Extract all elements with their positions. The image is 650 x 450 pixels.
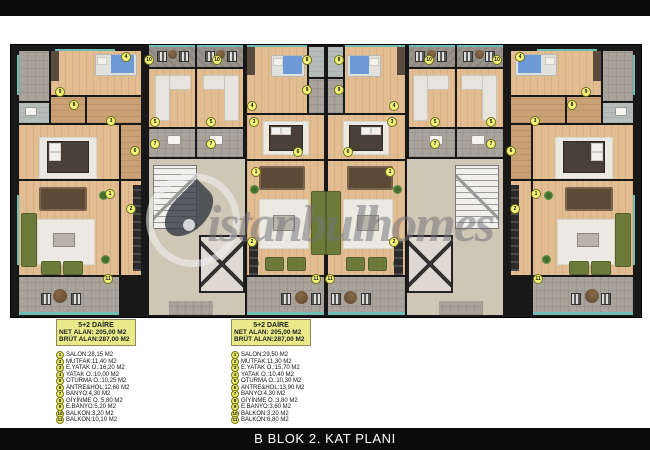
plan-badge-layer: 9836125710114105748936121110574893612119… <box>11 45 641 317</box>
legend-room-row: 11BALKON:6,80 M2 <box>231 417 381 424</box>
plan-room-badge: 6 <box>506 146 516 156</box>
legend-apartment-1: 5+2 DAİRE NET ALAN: 205,00 M2 BRÜT ALAN:… <box>56 319 206 424</box>
room-label: GİYİNME O.:3,80 M2 <box>241 398 298 404</box>
plan-room-badge: 11 <box>533 274 543 284</box>
plan-room-badge: 8 <box>567 100 577 110</box>
info-box: 5+2 DAİRE NET ALAN: 205,00 M2 BRÜT ALAN:… <box>231 319 311 346</box>
floor-plan: istanbulhomes 98361257101141057489361211… <box>10 44 642 318</box>
room-label: E.BANYO:5,20 M2 <box>66 404 116 410</box>
room-label: BALKON:6,80 M2 <box>241 417 289 423</box>
plan-room-badge: 5 <box>486 117 496 127</box>
plan-room-badge: 10 <box>492 55 502 65</box>
gross-area-label: BRÜT ALAN:287,00 M2 <box>59 336 133 343</box>
room-label: MUTFAK:11,30 M2 <box>241 359 292 365</box>
plan-room-badge: 2 <box>389 237 399 247</box>
plan-room-badge: 6 <box>343 147 353 157</box>
gross-area-label: BRÜT ALAN:287,00 M2 <box>234 336 308 343</box>
plan-room-badge: 4 <box>121 52 131 62</box>
plan-room-badge: 5 <box>430 117 440 127</box>
plan-room-badge: 9 <box>302 85 312 95</box>
plan-room-badge: 10 <box>212 55 222 65</box>
plan-room-badge: 11 <box>103 274 113 284</box>
plan-room-badge: 1 <box>385 167 395 177</box>
plan-room-badge: 9 <box>334 85 344 95</box>
plan-room-badge: 5 <box>150 117 160 127</box>
plan-room-badge: 9 <box>581 87 591 97</box>
room-label: ANTRE&HOL:13,90 M2 <box>241 385 304 391</box>
plan-room-badge: 3 <box>106 116 116 126</box>
plan-room-badge: 4 <box>247 101 257 111</box>
plan-room-badge: 8 <box>334 55 344 65</box>
plan-room-badge: 5 <box>206 117 216 127</box>
plan-room-badge: 2 <box>510 204 520 214</box>
plan-room-badge: 10 <box>424 55 434 65</box>
plan-room-badge: 2 <box>126 204 136 214</box>
legend-apartment-2: 5+2 DAİRE NET ALAN: 205,00 M2 BRÜT ALAN:… <box>231 319 381 424</box>
apartment-type-label: 5+2 DAİRE <box>234 322 308 329</box>
plan-room-badge: 3 <box>249 117 259 127</box>
plan-room-badge: 7 <box>206 139 216 149</box>
room-label: BANYO:4,30 M2 <box>66 391 110 397</box>
room-label: E.YATAK O.:16,20 M2 <box>66 365 125 371</box>
plan-room-badge: 6 <box>130 146 140 156</box>
room-label: BALKON:10,10 M2 <box>66 417 117 423</box>
net-area-label: NET ALAN: 205,00 M2 <box>59 329 133 336</box>
room-number-badge: 11 <box>56 416 64 424</box>
page-title: B BLOK 2. KAT PLANI <box>254 431 396 446</box>
plan-room-badge: 7 <box>486 139 496 149</box>
room-label: BALKON:3,20 M2 <box>66 411 114 417</box>
info-box: 5+2 DAİRE NET ALAN: 205,00 M2 BRÜT ALAN:… <box>56 319 136 346</box>
plan-room-badge: 1 <box>251 167 261 177</box>
room-label: GİYİNME O.:5,80 M2 <box>66 398 123 404</box>
room-label: E.BANYO:3,60 M2 <box>241 404 291 410</box>
legend-room-row: 11BALKON:10,10 M2 <box>56 417 206 424</box>
room-label: MUTFAK:11,40 M2 <box>66 359 117 365</box>
room-label: OTURMA O.:10,30 M2 <box>241 378 301 384</box>
floor-plan-page: istanbulhomes 98361257101141057489361211… <box>0 0 650 450</box>
room-label: ANTRE&HOL:12,60 M2 <box>66 385 129 391</box>
plan-room-badge: 11 <box>325 274 335 284</box>
room-label: OTURMA O.:10,25 M2 <box>66 378 126 384</box>
plan-room-badge: 4 <box>515 52 525 62</box>
plan-room-badge: 11 <box>311 274 321 284</box>
title-bar: B BLOK 2. KAT PLANI <box>0 428 650 450</box>
plan-room-badge: 7 <box>150 139 160 149</box>
plan-room-badge: 6 <box>293 147 303 157</box>
room-list: 1SALON:28,15 M22MUTFAK:11,40 M23E.YATAK … <box>56 352 206 424</box>
plan-room-badge: 4 <box>389 101 399 111</box>
apartment-type-label: 5+2 DAİRE <box>59 322 133 329</box>
plan-room-badge: 8 <box>302 55 312 65</box>
plan-room-badge: 9 <box>55 87 65 97</box>
plan-room-badge: 3 <box>387 117 397 127</box>
plan-room-badge: 2 <box>247 237 257 247</box>
plan-room-badge: 1 <box>105 189 115 199</box>
room-label: BANYO:4,30 M2 <box>241 391 285 397</box>
plan-room-badge: 1 <box>531 189 541 199</box>
room-label: SALON:28,15 M2 <box>66 352 113 358</box>
room-label: YATAK O.:10,00 M2 <box>66 372 119 378</box>
room-number-badge: 11 <box>231 416 239 424</box>
plan-room-badge: 10 <box>144 55 154 65</box>
net-area-label: NET ALAN: 205,00 M2 <box>234 329 308 336</box>
plan-room-badge: 3 <box>530 116 540 126</box>
room-label: SALON:29,50 M2 <box>241 352 288 358</box>
room-label: E.YATAK O.:15,70 M2 <box>241 365 300 371</box>
room-label: YATAK O.:10,40 M2 <box>241 372 294 378</box>
plan-room-badge: 7 <box>430 139 440 149</box>
room-list: 1SALON:29,50 M22MUTFAK:11,30 M23E.YATAK … <box>231 352 381 424</box>
room-label: BALKON:3,20 M2 <box>241 411 289 417</box>
top-border-bar <box>0 0 650 16</box>
plan-room-badge: 8 <box>69 100 79 110</box>
